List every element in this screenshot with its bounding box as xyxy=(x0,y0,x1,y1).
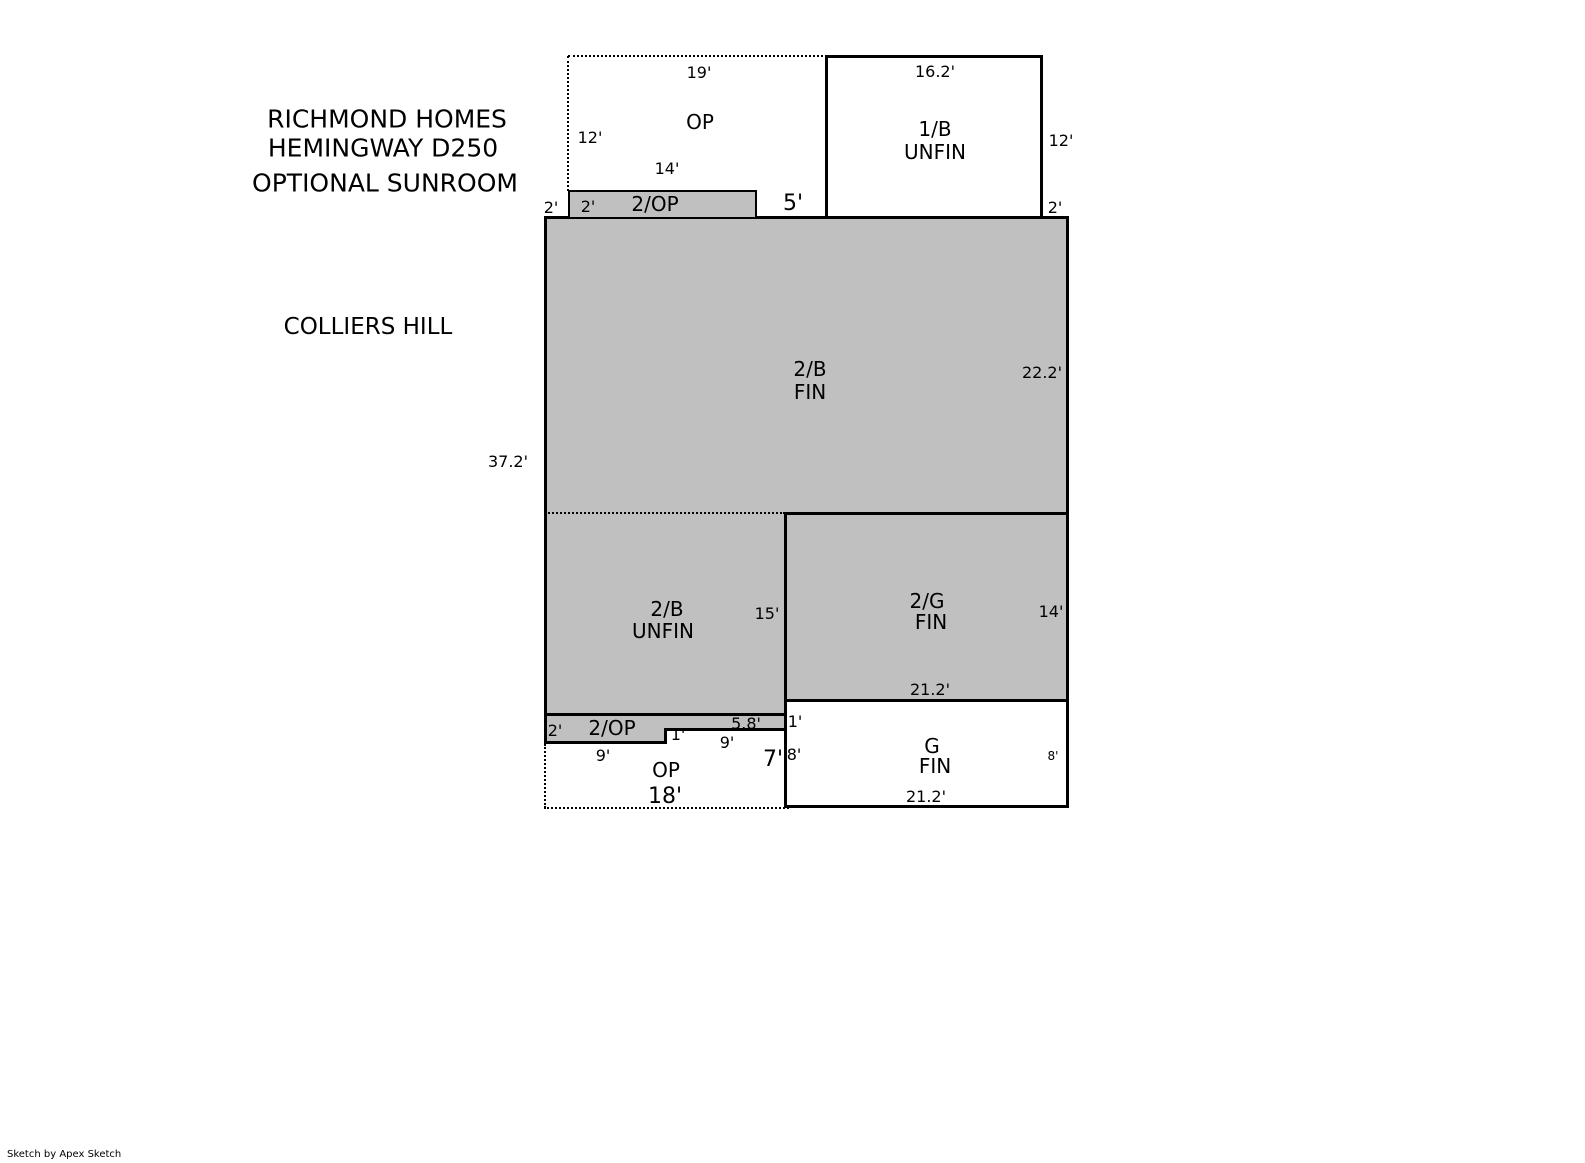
dim-strip-sub: 5.8' xyxy=(731,716,761,732)
dim-g-step: 1' xyxy=(788,714,803,730)
dim-strip-seg-left: 9' xyxy=(596,748,611,764)
room-label-2b-unfin: 2/B xyxy=(650,599,683,619)
plan-title-line1: RICHMOND HOMES xyxy=(267,105,507,134)
dim-1b-offset: 2' xyxy=(1048,200,1063,216)
dim-strip-seg-right: 9' xyxy=(720,735,735,751)
dim-2g-width: 21.2' xyxy=(910,682,950,698)
dim-2b-unfin-right: 15' xyxy=(755,606,780,622)
room-label-2g-fin: FIN xyxy=(915,612,947,632)
room-label-g: G xyxy=(924,736,940,756)
dim-op-width: 19' xyxy=(687,65,712,81)
dim-strip-left-height: 2' xyxy=(548,723,563,739)
sketch-credit: Sketch by Apex Sketch xyxy=(7,1149,121,1160)
dim-g-right: 8' xyxy=(1048,750,1059,762)
room-label-g-fin: FIN xyxy=(919,756,951,776)
dim-g-left: 8' xyxy=(787,747,802,763)
room-label-2b-fin: 2/B xyxy=(793,359,826,379)
dotted-2b-fin-unfin-divider xyxy=(545,512,785,514)
room-label-2op-top: 2/OP xyxy=(631,194,678,214)
dim-2b-right: 22.2' xyxy=(1022,365,1062,381)
plan-title-line2: HEMINGWAY D250 xyxy=(268,134,498,163)
dim-2op-top-height: 2' xyxy=(581,199,596,215)
room-label-1b-unfin: UNFIN xyxy=(904,142,966,162)
plan-title-line3: OPTIONAL SUNROOM xyxy=(252,169,518,198)
room-label-2g: 2/G xyxy=(910,591,945,611)
room-label-1b: 1/B xyxy=(918,119,951,139)
dim-2op-top-width: 14' xyxy=(655,161,680,177)
room-label-2b-unfin-unfin: UNFIN xyxy=(632,621,694,641)
wall-strip-bottom-left xyxy=(544,741,667,744)
dim-g-width: 21.2' xyxy=(906,789,946,805)
room-label-2op-bottom: 2/OP xyxy=(588,718,635,738)
room-label-op-top: OP xyxy=(686,112,714,132)
dotted-op-bottom-left-edge xyxy=(544,744,546,808)
room-label-2b-fin-fin: FIN xyxy=(794,382,826,402)
dotted-op-top-edge xyxy=(568,55,827,57)
dim-1b-width: 16.2' xyxy=(915,64,955,80)
floorplan-sketch-page: RICHMOND HOMES HEMINGWAY D250 OPTIONAL S… xyxy=(0,0,1585,1163)
dim-strip-step: 1' xyxy=(671,727,686,743)
dim-1b-right: 12' xyxy=(1049,133,1074,149)
dim-left-offset: 2' xyxy=(544,200,559,216)
wall-2g-bottom xyxy=(784,699,1069,702)
wall-2g-top xyxy=(784,512,1069,515)
dim-op-bottom-width: 18' xyxy=(648,786,682,808)
dim-2g-right: 14' xyxy=(1039,604,1064,620)
dim-op-left: 12' xyxy=(578,130,603,146)
room-label-op-bottom: OP xyxy=(652,760,680,780)
dim-gap-5: 5' xyxy=(783,193,803,215)
wall-main-left xyxy=(544,216,547,744)
dim-op-right: 7' xyxy=(763,749,783,771)
subdivision-name: COLLIERS HILL xyxy=(284,314,453,340)
dotted-op-left-edge xyxy=(567,56,569,191)
dim-left-total: 37.2' xyxy=(488,454,528,470)
